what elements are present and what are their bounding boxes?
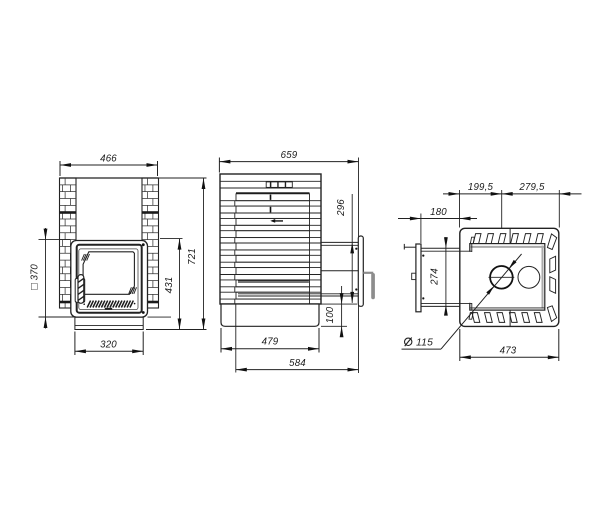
svg-text:100: 100 [325,306,336,323]
svg-text:199,5: 199,5 [468,182,494,193]
svg-text:279,5: 279,5 [518,182,545,193]
svg-text:466: 466 [100,154,117,165]
svg-text:115: 115 [416,338,433,349]
svg-text:659: 659 [281,150,298,161]
svg-text:721: 721 [187,248,198,265]
svg-text:□ 370: □ 370 [29,264,41,290]
svg-text:296: 296 [336,199,347,217]
svg-text:180: 180 [430,207,447,218]
svg-text:473: 473 [500,345,517,356]
svg-text:274: 274 [430,268,441,286]
svg-text:479: 479 [262,337,279,348]
svg-text:431: 431 [164,277,175,294]
svg-text:584: 584 [289,358,306,369]
svg-text:320: 320 [100,339,117,350]
